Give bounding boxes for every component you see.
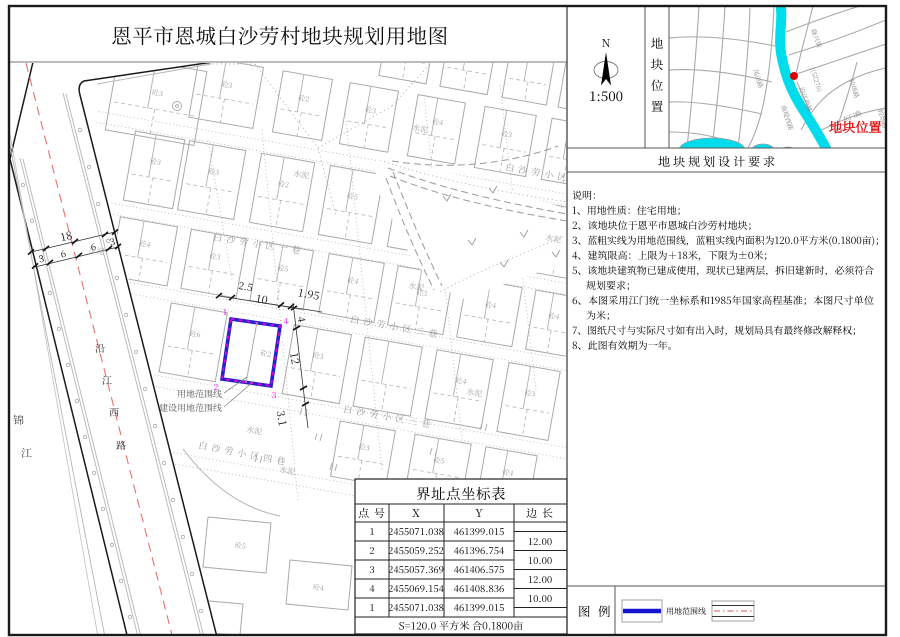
- svg-text:砼5: 砼5: [234, 540, 247, 552]
- svg-text:12.00: 12.00: [528, 534, 552, 548]
- svg-text:3: 3: [369, 562, 374, 576]
- svg-text:461408.836: 461408.836: [454, 581, 505, 595]
- svg-text:点 号: 点 号: [358, 505, 386, 521]
- svg-text:地: 地: [651, 34, 664, 52]
- svg-text:2.5: 2.5: [237, 277, 254, 294]
- svg-text:12.00: 12.00: [528, 572, 552, 586]
- svg-text:4: 4: [284, 315, 289, 327]
- svg-text:砼4: 砼4: [455, 376, 468, 388]
- svg-text:规划要求；: 规划要求；: [586, 277, 636, 292]
- svg-text:3、蓝粗实线为用地范围线，蓝粗实线内面积为120.0平方米(: 3、蓝粗实线为用地范围线，蓝粗实线内面积为120.0平方米(0.1800亩)；: [572, 232, 885, 247]
- svg-text:图例: 图例: [578, 602, 618, 620]
- svg-text:7、图纸尺寸与实际尺寸如有出入时，规划局具有最终修改解释权；: 7、图纸尺寸与实际尺寸如有出入时，规划局具有最终修改解释权；: [572, 322, 862, 337]
- svg-text:路: 路: [116, 437, 126, 452]
- svg-text:3: 3: [272, 389, 277, 401]
- svg-text:10.00: 10.00: [528, 553, 552, 567]
- svg-text:2455057.369: 2455057.369: [388, 562, 444, 576]
- svg-text:地块规划设计要求: 地块规划设计要求: [658, 153, 778, 170]
- svg-text:10.00: 10.00: [528, 591, 552, 605]
- svg-text:砼3: 砼3: [312, 350, 325, 362]
- svg-text:461396.754: 461396.754: [454, 543, 505, 557]
- svg-text:砼2: 砼2: [259, 348, 272, 360]
- svg-text:2: 2: [369, 543, 374, 557]
- svg-text:界址点坐标表: 界址点坐标表: [416, 483, 506, 504]
- svg-text:5、该地块建筑物已建成使用，现状已建两层，拆旧建新时，必须符: 5、该地块建筑物已建成使用，现状已建两层，拆旧建新时，必须符合: [572, 262, 874, 277]
- svg-text:6、本图采用江门统一坐标系和1985年国家高程基准；本图尺寸: 6、本图采用江门统一坐标系和1985年国家高程基准；本图尺寸单位: [572, 292, 874, 307]
- svg-text:砼3: 砼3: [364, 105, 377, 117]
- svg-text:置: 置: [651, 97, 664, 115]
- svg-text:Y: Y: [475, 505, 483, 521]
- svg-text:3.1: 3.1: [273, 409, 291, 427]
- svg-text:说明：: 说明：: [572, 187, 602, 202]
- svg-text:2455069.154: 2455069.154: [388, 581, 445, 595]
- svg-text:1:500: 1:500: [589, 85, 623, 105]
- svg-text:1、用地性质：住宅用地；: 1、用地性质：住宅用地；: [572, 202, 687, 217]
- svg-text:砼4: 砼4: [347, 275, 360, 287]
- svg-text:1: 1: [369, 600, 374, 614]
- svg-text:4、建筑限高：上限为＋18米，下限为±0米；: 4、建筑限高：上限为＋18米，下限为±0米；: [572, 247, 773, 262]
- svg-text:砼5: 砼5: [277, 263, 290, 275]
- svg-text:461399.015: 461399.015: [454, 600, 505, 614]
- svg-text:用地范围线: 用地范围线: [666, 606, 706, 617]
- svg-text:砼4: 砼4: [502, 467, 515, 479]
- svg-text:江: 江: [21, 445, 32, 461]
- svg-text:2455071.038: 2455071.038: [388, 524, 444, 538]
- svg-text:砼2: 砼2: [297, 93, 310, 105]
- svg-text:砼3: 砼3: [151, 87, 164, 99]
- svg-text:用地范围线: 用地范围线: [177, 387, 222, 400]
- svg-text:砼2: 砼2: [277, 179, 290, 191]
- svg-text:砼3: 砼3: [221, 79, 234, 91]
- svg-text:S=120.0 平方米 合0.1800亩: S=120.0 平方米 合0.1800亩: [399, 618, 523, 633]
- svg-text:建设用地范围线: 建设用地范围线: [159, 401, 222, 414]
- svg-text:位: 位: [651, 76, 664, 94]
- svg-text:为米；: 为米；: [586, 307, 616, 322]
- svg-text:块: 块: [651, 55, 664, 73]
- svg-text:1: 1: [223, 306, 228, 318]
- svg-text:2455059.252: 2455059.252: [388, 543, 444, 557]
- svg-text:锦: 锦: [13, 412, 24, 428]
- svg-text:砼4: 砼4: [312, 582, 325, 594]
- svg-text:砼4: 砼4: [139, 239, 152, 251]
- svg-text:砼4: 砼4: [431, 117, 444, 129]
- svg-text:砼3: 砼3: [358, 442, 371, 454]
- svg-text:砼5: 砼5: [433, 455, 446, 467]
- svg-text:江: 江: [102, 372, 112, 387]
- svg-text:砼3: 砼3: [149, 156, 162, 168]
- svg-text:砼4: 砼4: [547, 311, 560, 323]
- svg-text:N: N: [602, 35, 611, 51]
- svg-text:恩平市恩城白沙劳村地块规划用地图: 恩平市恩城白沙劳村地块规划用地图: [111, 20, 449, 50]
- svg-text:砼3: 砼3: [524, 388, 537, 400]
- svg-text:砼3: 砼3: [209, 251, 222, 263]
- svg-text:沿: 沿: [95, 340, 105, 355]
- svg-text:地块位置: 地块位置: [829, 117, 882, 136]
- svg-text:砼6: 砼6: [189, 329, 202, 341]
- svg-text:X: X: [412, 505, 420, 521]
- svg-text:1: 1: [369, 524, 374, 538]
- svg-text:2、该地块位于恩平市恩城白沙劳村地块；: 2、该地块位于恩平市恩城白沙劳村地块；: [572, 217, 758, 232]
- svg-text:461406.575: 461406.575: [454, 562, 505, 576]
- svg-text:4: 4: [369, 581, 375, 595]
- svg-text:砼5: 砼5: [346, 191, 359, 203]
- svg-text:砼4: 砼4: [484, 300, 497, 312]
- svg-text:边 长: 边 长: [526, 505, 554, 521]
- svg-text:2455071.038: 2455071.038: [388, 600, 444, 614]
- svg-text:西: 西: [109, 404, 119, 419]
- svg-text:8、此图有效期为一年。: 8、此图有效期为一年。: [572, 337, 678, 352]
- svg-text:461399.015: 461399.015: [454, 524, 505, 538]
